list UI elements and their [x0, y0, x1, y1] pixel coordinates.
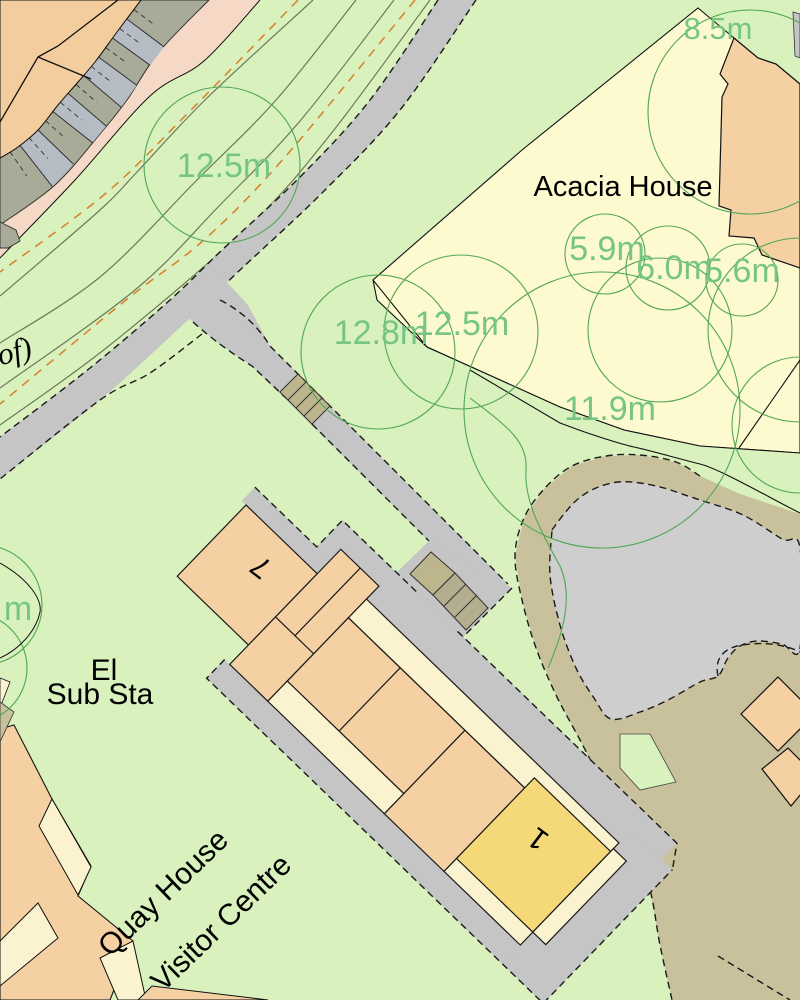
- svg-text:5.6m: 5.6m: [704, 252, 780, 290]
- svg-text:12.5m: 12.5m: [415, 305, 510, 343]
- svg-text:8.5m: 8.5m: [684, 11, 753, 46]
- svg-text:11.9m: 11.9m: [564, 390, 656, 428]
- svg-text:12.5m: 12.5m: [177, 147, 272, 185]
- svg-text:Acacia House: Acacia House: [534, 171, 713, 203]
- svg-text:m: m: [4, 590, 32, 628]
- svg-text:Sub Sta: Sub Sta: [47, 678, 154, 711]
- svg-text:5.9m: 5.9m: [569, 230, 645, 268]
- svg-text:6.0m: 6.0m: [636, 249, 712, 287]
